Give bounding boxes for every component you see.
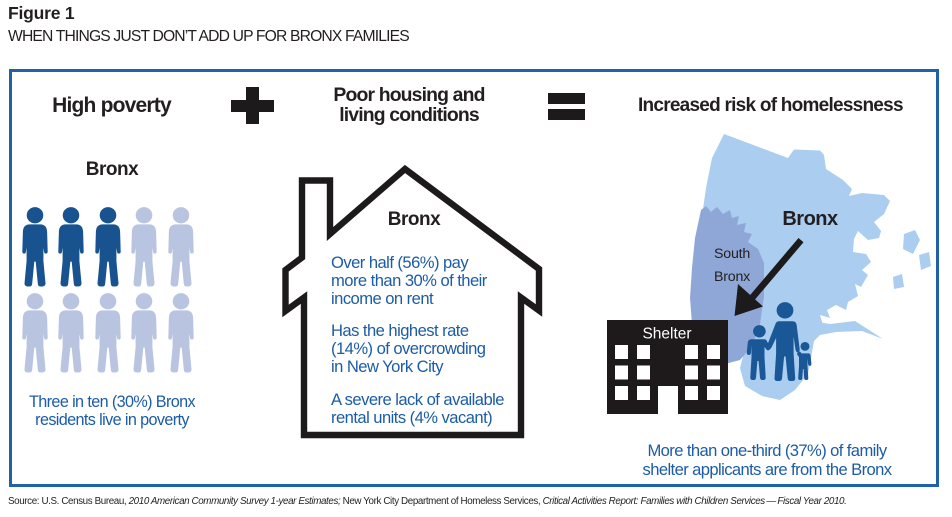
svg-text:Shelter: Shelter (642, 326, 691, 343)
